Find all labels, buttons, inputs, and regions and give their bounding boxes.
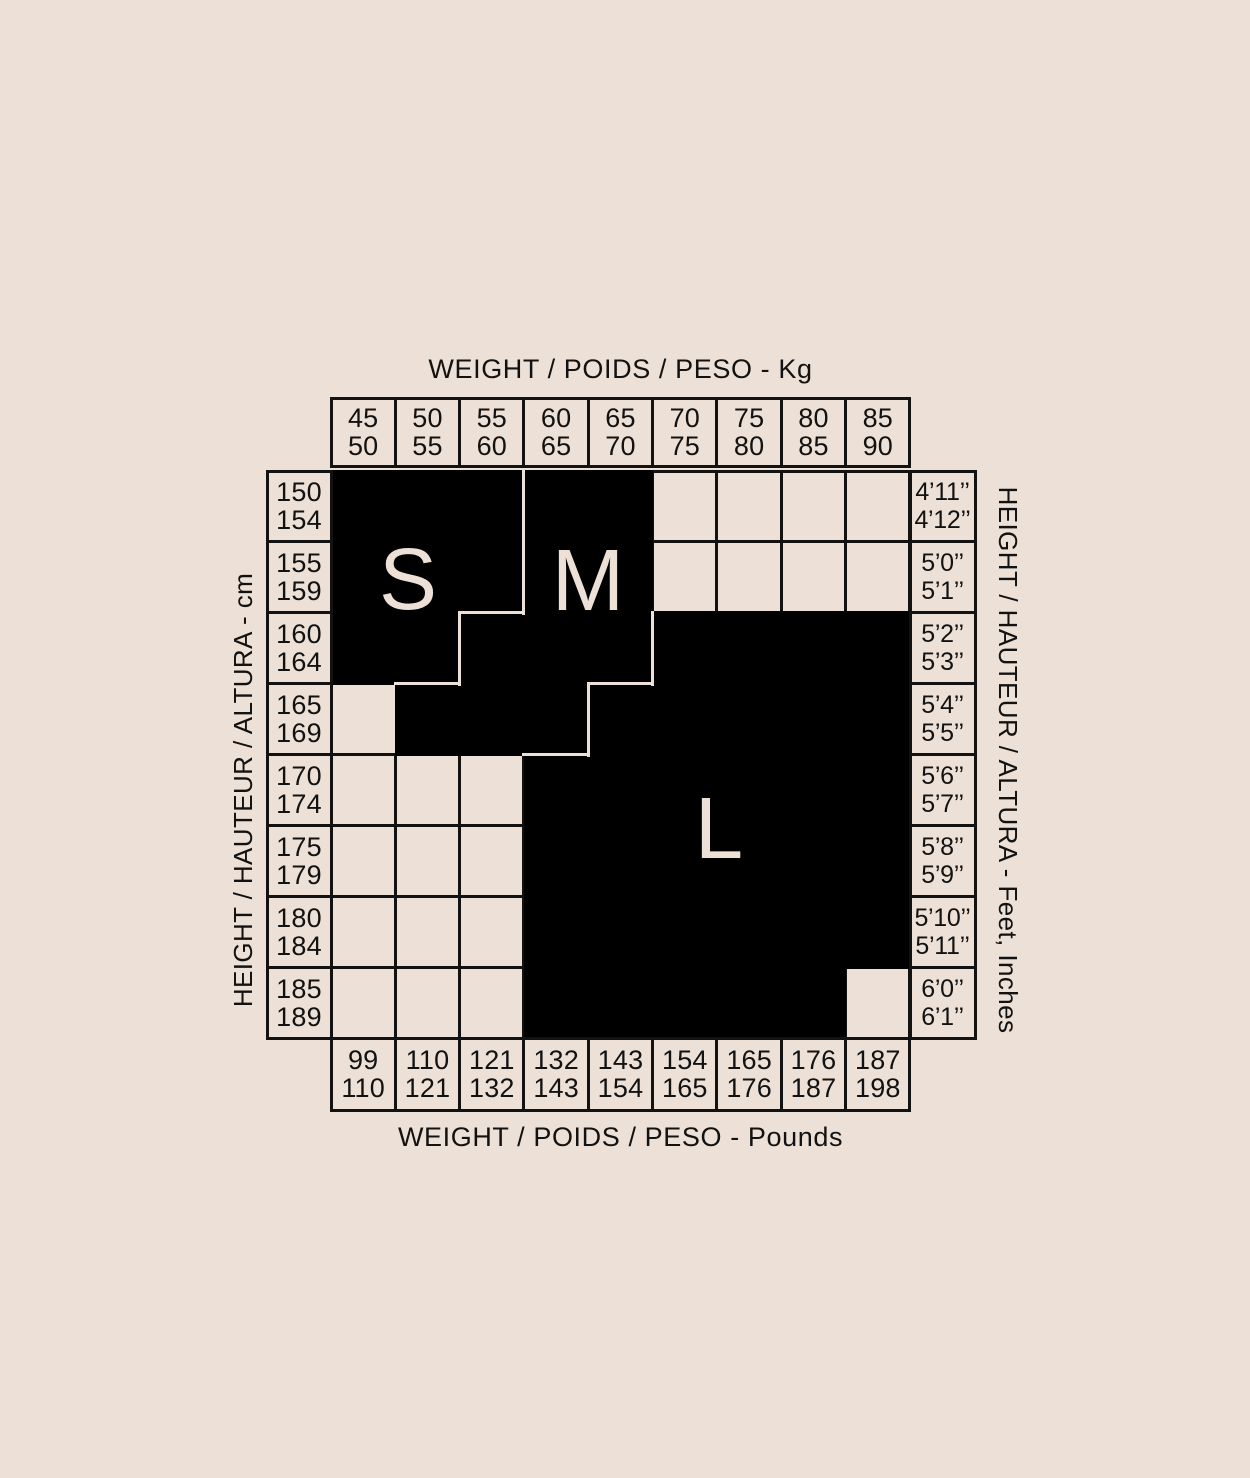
lb-footer-cell: 110121 xyxy=(394,1037,461,1112)
weight-kg-axis-title: WEIGHT / POIDS / PESO - Kg xyxy=(331,351,910,387)
ft-row-label: 5’8’’5’9’’ xyxy=(909,824,977,898)
grid-empty-cell xyxy=(844,470,911,544)
kg-header-cell-line: 55 xyxy=(477,404,507,432)
grid-empty-cell xyxy=(330,966,397,1040)
cm-row-label: 180184 xyxy=(266,895,333,969)
kg-header-cell-line: 80 xyxy=(798,404,828,432)
lb-footer-cell: 121132 xyxy=(458,1037,525,1112)
cm-row-label-line: 180 xyxy=(276,904,322,932)
cm-row-label-line: 179 xyxy=(276,861,322,889)
grid-empty-cell xyxy=(715,470,782,544)
ft-row-label: 5’10’’5’11’’ xyxy=(909,895,977,969)
cm-row-label-line: 165 xyxy=(276,691,322,719)
kg-header-cell: 7580 xyxy=(715,397,782,468)
grid-empty-cell xyxy=(458,824,525,898)
ft-row-label: 5’4’’5’5’’ xyxy=(909,682,977,756)
grid-empty-cell xyxy=(780,540,847,614)
kg-header-cell: 6570 xyxy=(587,397,654,468)
grid-empty-cell xyxy=(458,895,525,969)
region-separator xyxy=(394,682,461,685)
size-region-l xyxy=(588,682,910,756)
lb-footer-cell: 165176 xyxy=(715,1037,782,1112)
grid-empty-cell xyxy=(394,895,461,969)
grid-empty-cell xyxy=(458,966,525,1040)
region-separator xyxy=(587,682,590,757)
kg-header-cell-line: 90 xyxy=(863,432,893,460)
ft-row-label-line: 5’8’’ xyxy=(921,833,964,861)
kg-header-cell: 5560 xyxy=(458,397,525,468)
ft-row-label-line: 5’7’’ xyxy=(921,790,964,818)
kg-header-cell-line: 45 xyxy=(348,404,378,432)
kg-header-cell-line: 75 xyxy=(670,432,700,460)
cm-row-label: 175179 xyxy=(266,824,333,898)
cm-row-label-line: 170 xyxy=(276,762,322,790)
ft-row-label-line: 5’9’’ xyxy=(921,861,964,889)
cm-row-label: 150154 xyxy=(266,470,333,544)
cm-row-label-line: 184 xyxy=(276,932,322,960)
lb-footer-cell-line: 143 xyxy=(598,1046,644,1074)
grid-empty-cell xyxy=(330,753,397,827)
cm-row-label: 160164 xyxy=(266,611,333,685)
lb-footer-cell: 143154 xyxy=(587,1037,654,1112)
lb-footer-cell-line: 99 xyxy=(348,1046,378,1074)
cm-row-label-line: 160 xyxy=(276,620,322,648)
kg-header-cell: 4550 xyxy=(330,397,397,468)
cm-row-label-line: 189 xyxy=(276,1003,322,1031)
ft-row-label: 5’0’’5’1’’ xyxy=(909,540,977,614)
kg-header-cell-line: 60 xyxy=(477,432,507,460)
cm-row-label-line: 159 xyxy=(276,577,322,605)
lb-footer-cell: 154165 xyxy=(651,1037,718,1112)
grid-empty-cell xyxy=(780,470,847,544)
ft-row-label-line: 6’1’’ xyxy=(921,1003,964,1031)
lb-footer-cell-line: 176 xyxy=(726,1074,772,1102)
lb-footer-cell-line: 187 xyxy=(855,1046,901,1074)
ft-row-label-line: 4’11’’ xyxy=(915,478,969,506)
ft-row-label-line: 6’0’’ xyxy=(921,975,964,1003)
ft-row-label-line: 5’3’’ xyxy=(921,648,964,676)
size-region-l xyxy=(653,611,910,685)
lb-footer-cell-line: 110 xyxy=(406,1046,450,1074)
lb-footer-cell-line: 198 xyxy=(855,1074,901,1102)
kg-header-cell: 5055 xyxy=(394,397,461,468)
cm-row-label-line: 164 xyxy=(276,648,322,676)
ft-row-label-line: 5’4’’ xyxy=(921,691,964,719)
grid-empty-cell xyxy=(394,753,461,827)
kg-header-cell-line: 70 xyxy=(605,432,635,460)
grid-empty-cell xyxy=(458,753,525,827)
lb-footer-cell-line: 154 xyxy=(598,1074,644,1102)
kg-header-cell-line: 80 xyxy=(734,432,764,460)
cm-row-label: 155159 xyxy=(266,540,333,614)
kg-header-cell: 6065 xyxy=(522,397,589,468)
size-region-l xyxy=(524,966,846,1040)
cm-row-label-line: 169 xyxy=(276,719,322,747)
lb-footer-cell: 187198 xyxy=(844,1037,911,1112)
grid-empty-cell xyxy=(394,966,461,1040)
lb-footer-cell-line: 176 xyxy=(791,1046,837,1074)
lb-footer-cell-line: 187 xyxy=(791,1074,837,1102)
ft-row-label-line: 4’12’’ xyxy=(914,506,970,534)
ft-row-label: 5’2’’5’3’’ xyxy=(909,611,977,685)
lb-footer-cell: 176187 xyxy=(780,1037,847,1112)
kg-header-cell: 8085 xyxy=(780,397,847,468)
ft-row-label-line: 5’6’’ xyxy=(921,762,964,790)
ft-row-label-line: 5’10’’ xyxy=(914,904,970,932)
kg-header-cell-line: 60 xyxy=(541,404,571,432)
lb-footer-cell-line: 121 xyxy=(469,1046,515,1074)
ft-row-label-line: 5’5’’ xyxy=(921,719,964,747)
region-separator xyxy=(587,682,654,685)
ft-row-label-line: 5’0’’ xyxy=(921,549,964,577)
height-cm-axis-title: HEIGHT / HAUTEUR / ALTURA - cm xyxy=(227,510,259,1070)
lb-footer-cell-line: 132 xyxy=(469,1074,515,1102)
ft-row-label: 4’11’’4’12’’ xyxy=(909,470,977,544)
kg-header-cell-line: 70 xyxy=(670,404,700,432)
ft-row-label: 6’0’’6’1’’ xyxy=(909,966,977,1040)
cm-row-label-line: 174 xyxy=(276,790,322,818)
size-chart: 4550505555606065657070757580808585909911… xyxy=(0,0,1250,1478)
size-letter-m: M xyxy=(518,516,658,646)
size-letter-l: L xyxy=(649,764,789,894)
kg-header-cell-line: 85 xyxy=(863,404,893,432)
size-region-l xyxy=(524,895,910,969)
grid-empty-cell xyxy=(844,540,911,614)
grid-empty-cell xyxy=(330,824,397,898)
lb-footer-cell-line: 165 xyxy=(726,1046,772,1074)
weight-pounds-axis-title: WEIGHT / POIDS / PESO - Pounds xyxy=(331,1119,910,1155)
kg-header-cell-line: 50 xyxy=(412,404,442,432)
cm-row-label-line: 150 xyxy=(276,478,322,506)
ft-row-label: 5’6’’5’7’’ xyxy=(909,753,977,827)
kg-header-cell: 7075 xyxy=(651,397,718,468)
cm-row-label-line: 155 xyxy=(276,549,322,577)
lb-footer-cell: 132143 xyxy=(522,1037,589,1112)
kg-header-cell-line: 65 xyxy=(541,432,571,460)
lb-footer-cell-line: 165 xyxy=(662,1074,708,1102)
grid-empty-cell xyxy=(651,470,718,544)
height-feet-axis-title: HEIGHT / HAUTEUR / ALTURA - Feet, Inches xyxy=(992,480,1024,1040)
kg-header-cell-line: 50 xyxy=(348,432,378,460)
ft-row-label-line: 5’1’’ xyxy=(921,577,964,605)
ft-row-label-line: 5’2’’ xyxy=(921,620,964,648)
grid-empty-cell xyxy=(330,895,397,969)
cm-row-label: 185189 xyxy=(266,966,333,1040)
size-letter-s: S xyxy=(338,515,478,645)
size-region-m xyxy=(395,682,588,756)
cm-row-label: 165169 xyxy=(266,682,333,756)
grid-empty-cell xyxy=(394,824,461,898)
grid-empty-cell xyxy=(844,966,911,1040)
kg-header-cell-line: 75 xyxy=(734,404,764,432)
grid-empty-cell xyxy=(715,540,782,614)
grid-empty-cell xyxy=(651,540,718,614)
lb-footer-cell-line: 154 xyxy=(662,1046,708,1074)
kg-header-cell-line: 55 xyxy=(412,432,442,460)
lb-footer-cell-line: 110 xyxy=(341,1074,385,1102)
cm-row-label-line: 175 xyxy=(276,833,322,861)
kg-header-cell: 8590 xyxy=(844,397,911,468)
size-chart-grid: 4550505555606065657070757580808585909911… xyxy=(0,0,1250,1478)
cm-row-label-line: 185 xyxy=(276,975,322,1003)
lb-footer-cell: 99110 xyxy=(330,1037,397,1112)
kg-header-cell-line: 65 xyxy=(605,404,635,432)
lb-footer-cell-line: 132 xyxy=(533,1046,579,1074)
cm-row-label: 170174 xyxy=(266,753,333,827)
region-separator xyxy=(522,753,589,756)
ft-row-label-line: 5’11’’ xyxy=(915,932,969,960)
kg-header-cell-line: 85 xyxy=(798,432,828,460)
lb-footer-cell-line: 143 xyxy=(533,1074,579,1102)
lb-footer-cell-line: 121 xyxy=(405,1074,451,1102)
cm-row-label-line: 154 xyxy=(276,506,322,534)
